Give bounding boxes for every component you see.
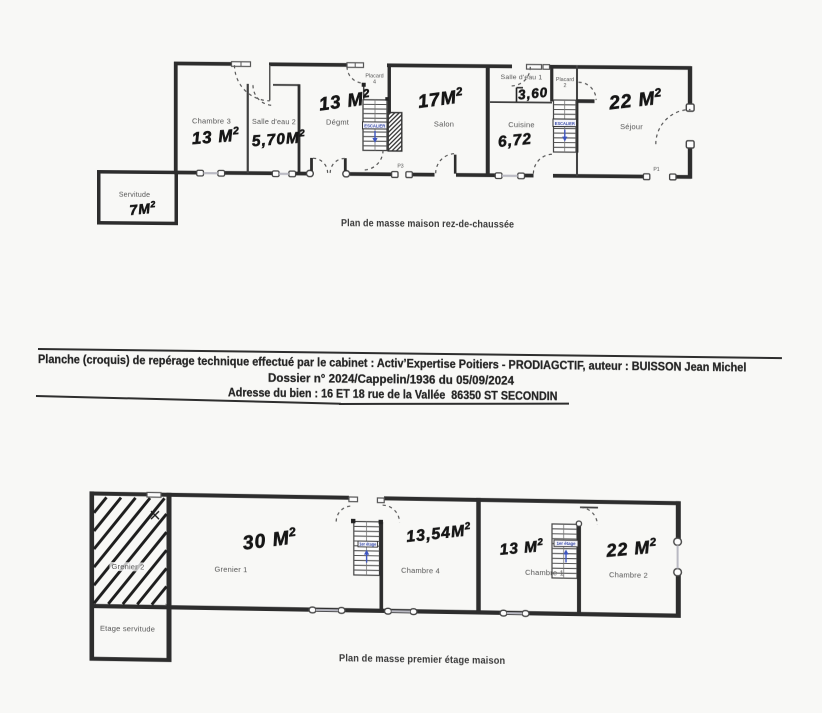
svg-text:1er étage: 1er étage [557, 541, 577, 546]
svg-text:1er étage: 1er étage [359, 542, 377, 547]
svg-text:ESCALIER: ESCALIER [364, 123, 386, 128]
svg-text:ESCALIER: ESCALIER [555, 121, 576, 126]
